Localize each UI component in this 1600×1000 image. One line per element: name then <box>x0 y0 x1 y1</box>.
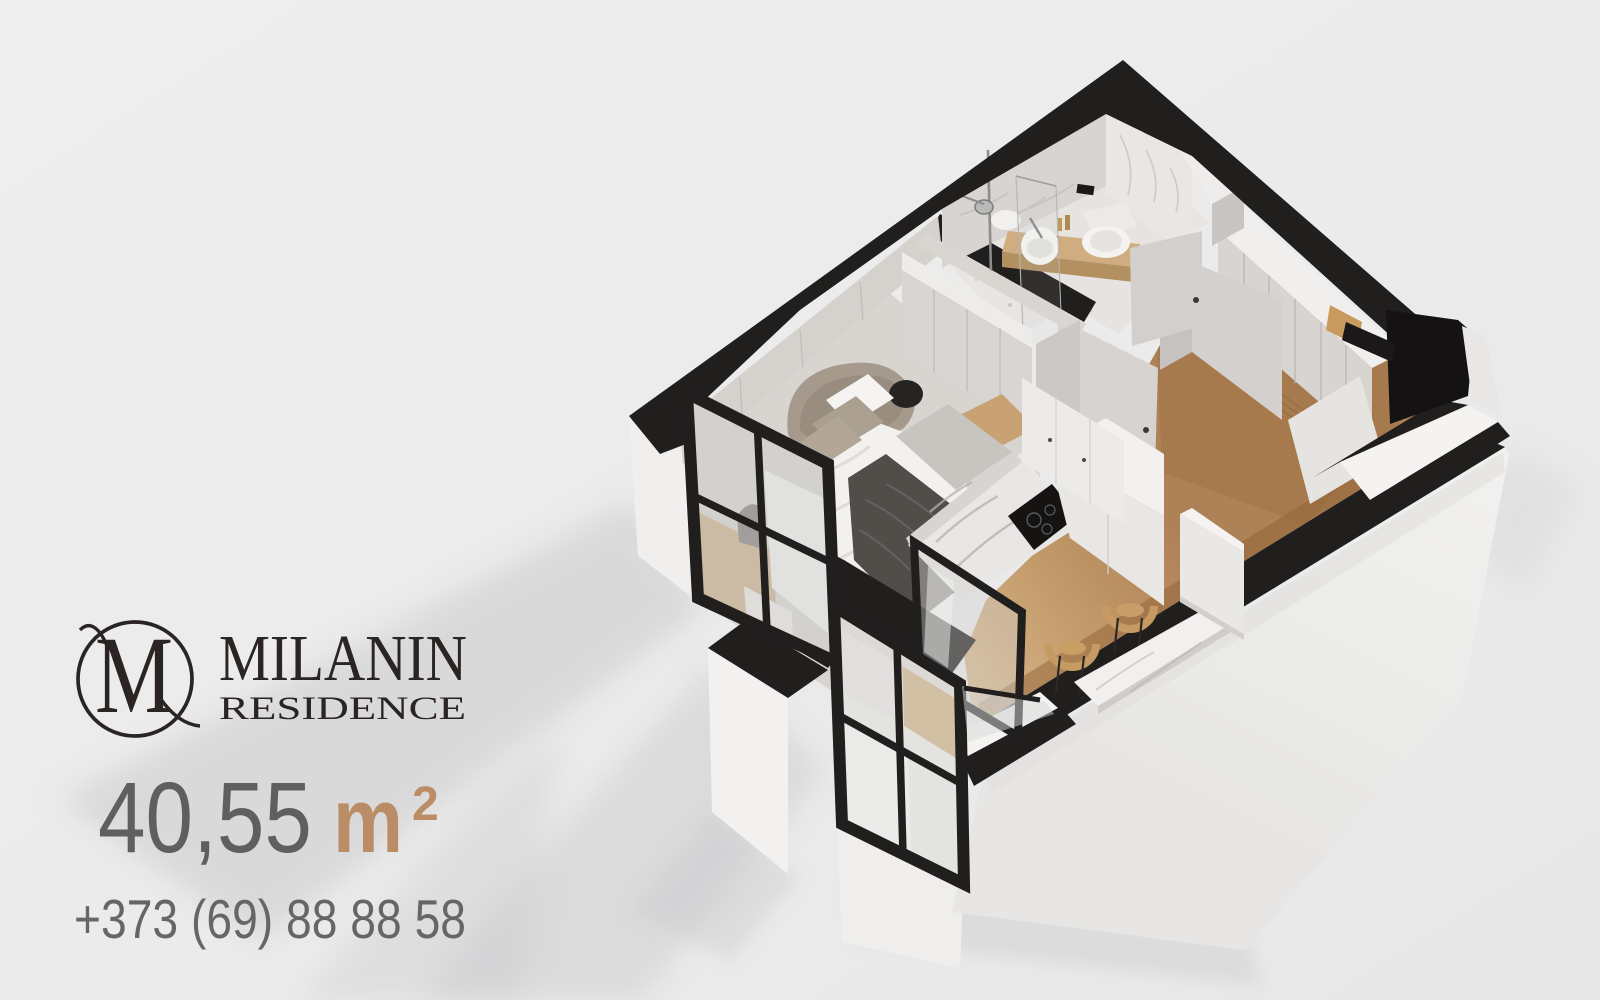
svg-text:m: m <box>333 770 403 872</box>
svg-text:M: M <box>95 614 173 736</box>
svg-text:RESIDENCE: RESIDENCE <box>219 691 466 727</box>
svg-text:2: 2 <box>412 778 439 831</box>
svg-text:MILANIN: MILANIN <box>219 622 467 695</box>
svg-text:40,55: 40,55 <box>98 762 312 874</box>
svg-text:+373 (69) 88 88 58: +373 (69) 88 88 58 <box>74 888 466 950</box>
